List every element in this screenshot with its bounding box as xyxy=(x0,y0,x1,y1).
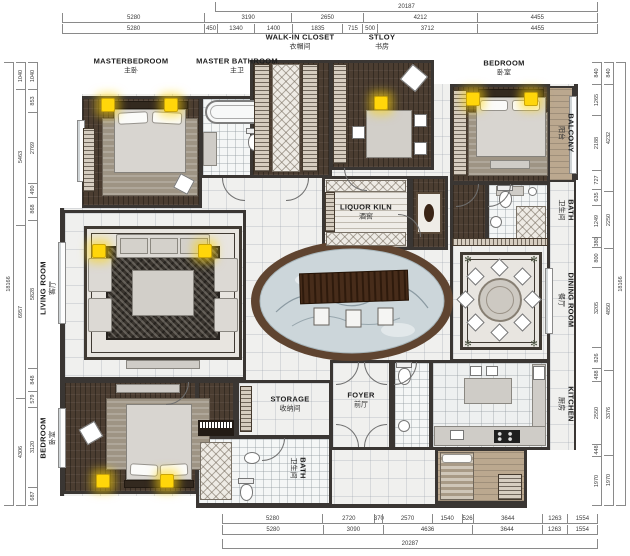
dimension-value: 853 xyxy=(30,97,36,106)
toilet xyxy=(240,484,253,501)
dimension-value: 1040 xyxy=(30,70,36,82)
dimension-segment: 2550 xyxy=(592,381,602,444)
dimension-segment: 4306 xyxy=(16,398,26,506)
dimension-value: 18166 xyxy=(618,276,624,291)
dimension-value: 5280 xyxy=(266,516,279,522)
bar-counter xyxy=(300,270,409,304)
sideboard xyxy=(452,238,548,246)
dimension-segment: 2720 xyxy=(322,514,374,524)
pond xyxy=(248,238,456,364)
wine-rack xyxy=(325,192,335,232)
sofa-seat xyxy=(150,238,178,254)
dimension-value: 3644 xyxy=(501,516,514,522)
dimension-value: 1400 xyxy=(267,26,280,32)
dimension-segment: 1554 xyxy=(567,525,598,535)
dimension-value: 5280 xyxy=(266,527,279,533)
dimension-segment: 4212 xyxy=(363,13,477,23)
dimension-segment: 370 xyxy=(374,514,382,524)
stool xyxy=(470,366,482,376)
dimension-value: 3712 xyxy=(421,26,434,32)
dimension-value: 840 xyxy=(594,69,600,78)
dimension-segment: 727 xyxy=(592,170,602,189)
dining-table xyxy=(478,278,522,322)
sink xyxy=(490,216,502,228)
dimension-segment: 1263 xyxy=(542,514,567,524)
dimension-value: 4232 xyxy=(606,132,612,144)
dimension-value: 4306 xyxy=(18,446,24,458)
dimension-value: 1263 xyxy=(548,527,561,533)
vanity xyxy=(203,132,217,166)
ceiling-light-icon xyxy=(524,92,538,106)
dimension-segment: 2769 xyxy=(28,112,38,183)
wardrobe xyxy=(498,474,522,500)
dimension-segment: 3190 xyxy=(204,13,290,23)
dimension-col-left-outer: 1040546369574306 xyxy=(16,62,26,506)
room-label-storage: STORAGE 收纳间 xyxy=(270,395,309,414)
dimension-row-top-total: 20187 xyxy=(215,2,598,12)
pillow xyxy=(442,454,472,463)
dimension-segment: 1040 xyxy=(16,62,26,89)
dimension-value: 2188 xyxy=(594,137,600,149)
dimension-value: 4212 xyxy=(414,15,427,21)
dimension-segment: 5828 xyxy=(28,220,38,369)
dimension-row-top-1: 52803190265042124455 xyxy=(62,13,598,23)
pillow xyxy=(130,463,159,476)
dimension-segment: 3120 xyxy=(28,407,38,487)
room-label-bedroom-bottom: BEDROOM 卧室 xyxy=(39,417,58,458)
display-cabinet-core xyxy=(424,204,434,222)
dimension-segment: 450 xyxy=(204,24,217,34)
dimension-value: 826 xyxy=(594,353,600,362)
dimension-row-bottom-total: 20287 xyxy=(222,539,598,549)
chair xyxy=(414,142,427,155)
dimension-value: 526 xyxy=(463,516,473,522)
bar-stool xyxy=(378,308,393,325)
dimension-value: 840 xyxy=(606,69,612,78)
ceiling-light-icon xyxy=(198,244,212,258)
armchair xyxy=(88,258,112,292)
cutout xyxy=(56,496,196,512)
room-label-balcony: BALCONY 阳台 xyxy=(557,113,576,152)
dimension-value: 1970 xyxy=(594,475,600,487)
dimension-value: 5280 xyxy=(127,15,140,21)
dimension-value: 3120 xyxy=(30,441,36,453)
dimension-value: 715 xyxy=(348,26,358,32)
piano xyxy=(198,420,234,436)
dimension-segment: 5280 xyxy=(62,24,204,34)
dimension-value: 3090 xyxy=(347,527,360,533)
dimension-segment: 1554 xyxy=(567,514,598,524)
dimension-value: 800 xyxy=(594,253,600,262)
storage-shelf xyxy=(240,386,252,432)
dimension-value: 18166 xyxy=(6,276,12,291)
room-label-bedroom-top: BEDROOM 卧室 xyxy=(483,59,524,78)
dimension-segment: 18166 xyxy=(4,62,14,506)
dimension-segment: 2250 xyxy=(604,191,614,248)
dimension-value: 1554 xyxy=(576,527,589,533)
dimension-value: 1263 xyxy=(548,516,561,522)
dimension-value: 1970 xyxy=(606,474,612,486)
dimension-segment: 3376 xyxy=(604,370,614,455)
bench xyxy=(490,160,530,169)
plant-icon: ✻ xyxy=(464,339,472,350)
dimension-segment: 1340 xyxy=(217,24,254,34)
room-label-foyer: FOYER 前厅 xyxy=(347,391,374,410)
dimension-segment: 2188 xyxy=(592,115,602,169)
dimension-col-left-inner: 1040853276949086858288485793120687 xyxy=(28,62,38,506)
dimension-value: 2769 xyxy=(30,142,36,154)
window xyxy=(58,242,66,324)
armchair xyxy=(214,258,238,292)
desk xyxy=(366,110,412,158)
dimension-col-right-total: 18166 xyxy=(616,62,626,506)
dimension-segment: 488 xyxy=(592,368,602,381)
dimension-col-right-outer: 84042322250485033761970 xyxy=(604,62,614,506)
coffee-table xyxy=(132,270,194,316)
dimension-value: 448 xyxy=(594,446,600,455)
stove xyxy=(494,430,520,443)
ceiling-light-icon xyxy=(466,92,480,106)
dimension-value: 3190 xyxy=(241,15,254,21)
kitchen-island xyxy=(464,378,512,404)
dimension-segment: 2650 xyxy=(291,13,363,23)
dimension-value: 4455 xyxy=(531,15,544,21)
dimension-segment: 715 xyxy=(342,24,362,34)
cutout xyxy=(576,180,584,450)
dimension-segment: 5463 xyxy=(16,89,26,225)
dimension-value: 1554 xyxy=(576,516,589,522)
dimension-segment: 1040 xyxy=(28,62,38,89)
dimension-segment: 20187 xyxy=(215,2,598,12)
chair xyxy=(352,126,365,139)
dimension-segment: 4232 xyxy=(604,84,614,191)
dimension-value: 490 xyxy=(30,186,36,195)
dimension-segment: 868 xyxy=(28,197,38,220)
plant-icon: ✻ xyxy=(530,255,538,266)
chair xyxy=(414,114,427,127)
room-label-master-bathroom: MASTER BATHROOM 主卫 xyxy=(196,57,278,76)
bed-headboard xyxy=(124,480,194,488)
dimension-value: 579 xyxy=(30,395,36,404)
wine-rack xyxy=(326,232,406,246)
dimension-value: 1340 xyxy=(229,26,242,32)
ceiling-light-icon xyxy=(96,474,110,488)
dimension-segment: 4636 xyxy=(383,525,472,535)
room-label-living: LIVING ROOM 客厅 xyxy=(39,261,58,315)
dimension-row-bottom-1: 5280272037025701540526364412631554 xyxy=(222,514,598,524)
dimension-segment: 848 xyxy=(28,368,38,391)
dimension-segment: 635 xyxy=(592,189,602,206)
cutout xyxy=(527,450,582,512)
dimension-segment: 687 xyxy=(28,487,38,506)
dimension-segment: 3644 xyxy=(473,514,543,524)
kitchen-sink xyxy=(450,430,464,440)
dimension-segment: 4850 xyxy=(604,248,614,370)
dimension-value: 488 xyxy=(594,370,600,379)
dimension-value: 848 xyxy=(30,375,36,384)
dimension-value: 2550 xyxy=(594,407,600,419)
fridge xyxy=(533,366,545,380)
dimension-value: 5280 xyxy=(127,26,140,32)
dimension-row-bottom-2: 528030904636364412631554 xyxy=(222,525,598,535)
wardrobe xyxy=(83,128,95,192)
dimension-value: 4850 xyxy=(606,303,612,315)
dimension-value: 2250 xyxy=(606,213,612,225)
floor-plan: 20187 52803190265042124455 5280450134014… xyxy=(0,0,630,556)
wardrobe xyxy=(254,64,270,172)
bookshelf xyxy=(333,64,347,164)
dimension-segment: 3644 xyxy=(472,525,542,535)
dimension-value: 1540 xyxy=(440,516,453,522)
wardrobe xyxy=(453,90,467,176)
dimension-value: 1040 xyxy=(18,70,24,82)
dimension-value: 3376 xyxy=(606,407,612,419)
dimension-value: 1265 xyxy=(594,94,600,106)
dimension-segment: 1970 xyxy=(604,455,614,506)
dimension-value: 3205 xyxy=(594,301,600,313)
stool xyxy=(528,187,537,196)
dimension-segment: 1263 xyxy=(542,525,567,535)
dimension-segment: 448 xyxy=(592,444,602,456)
ceiling-light-icon xyxy=(374,96,388,110)
tv-cabinet xyxy=(126,360,200,369)
pillow xyxy=(480,100,508,111)
dimension-segment: 1249 xyxy=(592,205,602,237)
dimension-segment: 840 xyxy=(604,62,614,84)
dimension-value: 5828 xyxy=(30,288,36,300)
ceiling-light-icon xyxy=(160,474,174,488)
sofa-seat xyxy=(120,238,148,254)
dimension-value: 2570 xyxy=(401,516,414,522)
dimension-segment: 5280 xyxy=(62,13,204,23)
dimension-segment: 4455 xyxy=(477,13,598,23)
room-label-bath-right: BATH 卫生间 xyxy=(557,199,576,220)
pillow xyxy=(118,111,149,125)
sink xyxy=(398,420,410,432)
ceiling-light-icon xyxy=(92,244,106,258)
dimension-segment: 6957 xyxy=(16,225,26,398)
dimension-segment: 3205 xyxy=(592,267,602,346)
room-label-liquor-kiln: LIQUOR KILN 酒窖 xyxy=(340,203,392,222)
armchair xyxy=(88,298,112,332)
window xyxy=(58,408,66,468)
dimension-segment: 826 xyxy=(592,347,602,368)
shower xyxy=(200,442,232,500)
dimension-segment: 1540 xyxy=(432,514,462,524)
room-label-bath-bottom: BATH 卫生间 xyxy=(289,457,308,478)
window xyxy=(545,268,553,334)
room-label-kitchen: KITCHEN 厨房 xyxy=(557,386,576,421)
dimension-value: 687 xyxy=(30,492,36,501)
dimension-segment: 2570 xyxy=(382,514,431,524)
shower xyxy=(516,206,546,240)
dimension-value: 2720 xyxy=(342,516,355,522)
dimension-value: 5463 xyxy=(18,151,24,163)
dimension-value: 4636 xyxy=(421,527,434,533)
wardrobe xyxy=(302,64,318,172)
room-label-study: STLOY 书房 xyxy=(369,33,396,52)
room-label-walk-in-closet: WALK-IN CLOSET 衣帽间 xyxy=(266,33,335,52)
ceiling-light-icon xyxy=(164,98,178,112)
plant-icon: ✻ xyxy=(530,339,538,350)
dimension-segment: 18166 xyxy=(616,62,626,506)
dimension-value: 2650 xyxy=(321,15,334,21)
dimension-segment: 840 xyxy=(592,62,602,84)
dimension-value: 635 xyxy=(594,193,600,202)
dimension-segment: 1265 xyxy=(592,84,602,116)
cutout xyxy=(434,56,450,84)
dimension-value: 4455 xyxy=(531,26,544,32)
dimension-segment: 800 xyxy=(592,247,602,268)
dimension-segment: 380 xyxy=(592,237,602,247)
dimension-segment: 490 xyxy=(28,183,38,196)
dimension-value: 380 xyxy=(594,238,600,247)
stool xyxy=(486,366,498,376)
ceiling-light-icon xyxy=(101,98,115,112)
dimension-segment: 526 xyxy=(462,514,473,524)
dimension-segment: 1970 xyxy=(592,456,602,506)
dimension-col-left-total: 18166 xyxy=(4,62,14,506)
dimension-segment: 579 xyxy=(28,391,38,407)
room-label-dining: DINING ROOM 餐厅 xyxy=(557,273,576,328)
dimension-value: 3644 xyxy=(500,527,513,533)
plant-icon: ✻ xyxy=(464,255,472,266)
dimension-value: 20287 xyxy=(402,541,419,547)
bar-stool xyxy=(346,310,361,327)
dimension-segment: 3090 xyxy=(323,525,383,535)
dimension-value: 1835 xyxy=(311,26,324,32)
dimension-segment: 5280 xyxy=(222,525,323,535)
sink xyxy=(244,452,260,464)
dimension-value: 727 xyxy=(594,175,600,184)
dimension-segment: 5280 xyxy=(222,514,322,524)
dimension-value: 20187 xyxy=(398,4,415,10)
dimension-segment: 853 xyxy=(28,89,38,112)
pillow xyxy=(152,111,183,125)
dimension-value: 1249 xyxy=(594,215,600,227)
dimension-value: 500 xyxy=(365,26,375,32)
dimension-col-right-inner: 8401265218872763512493808003205826488255… xyxy=(592,62,602,506)
closet-aisle xyxy=(272,64,300,172)
dimension-segment: 20287 xyxy=(222,539,598,549)
bar-stool xyxy=(314,308,329,325)
dimension-segment: 4455 xyxy=(477,24,598,34)
dimension-value: 868 xyxy=(30,204,36,213)
room-label-master-bedroom: MASTERBEDROOM 主卧 xyxy=(94,57,169,76)
armchair xyxy=(214,298,238,332)
dimension-value: 6957 xyxy=(18,306,24,318)
dimension-value: 450 xyxy=(206,26,216,32)
